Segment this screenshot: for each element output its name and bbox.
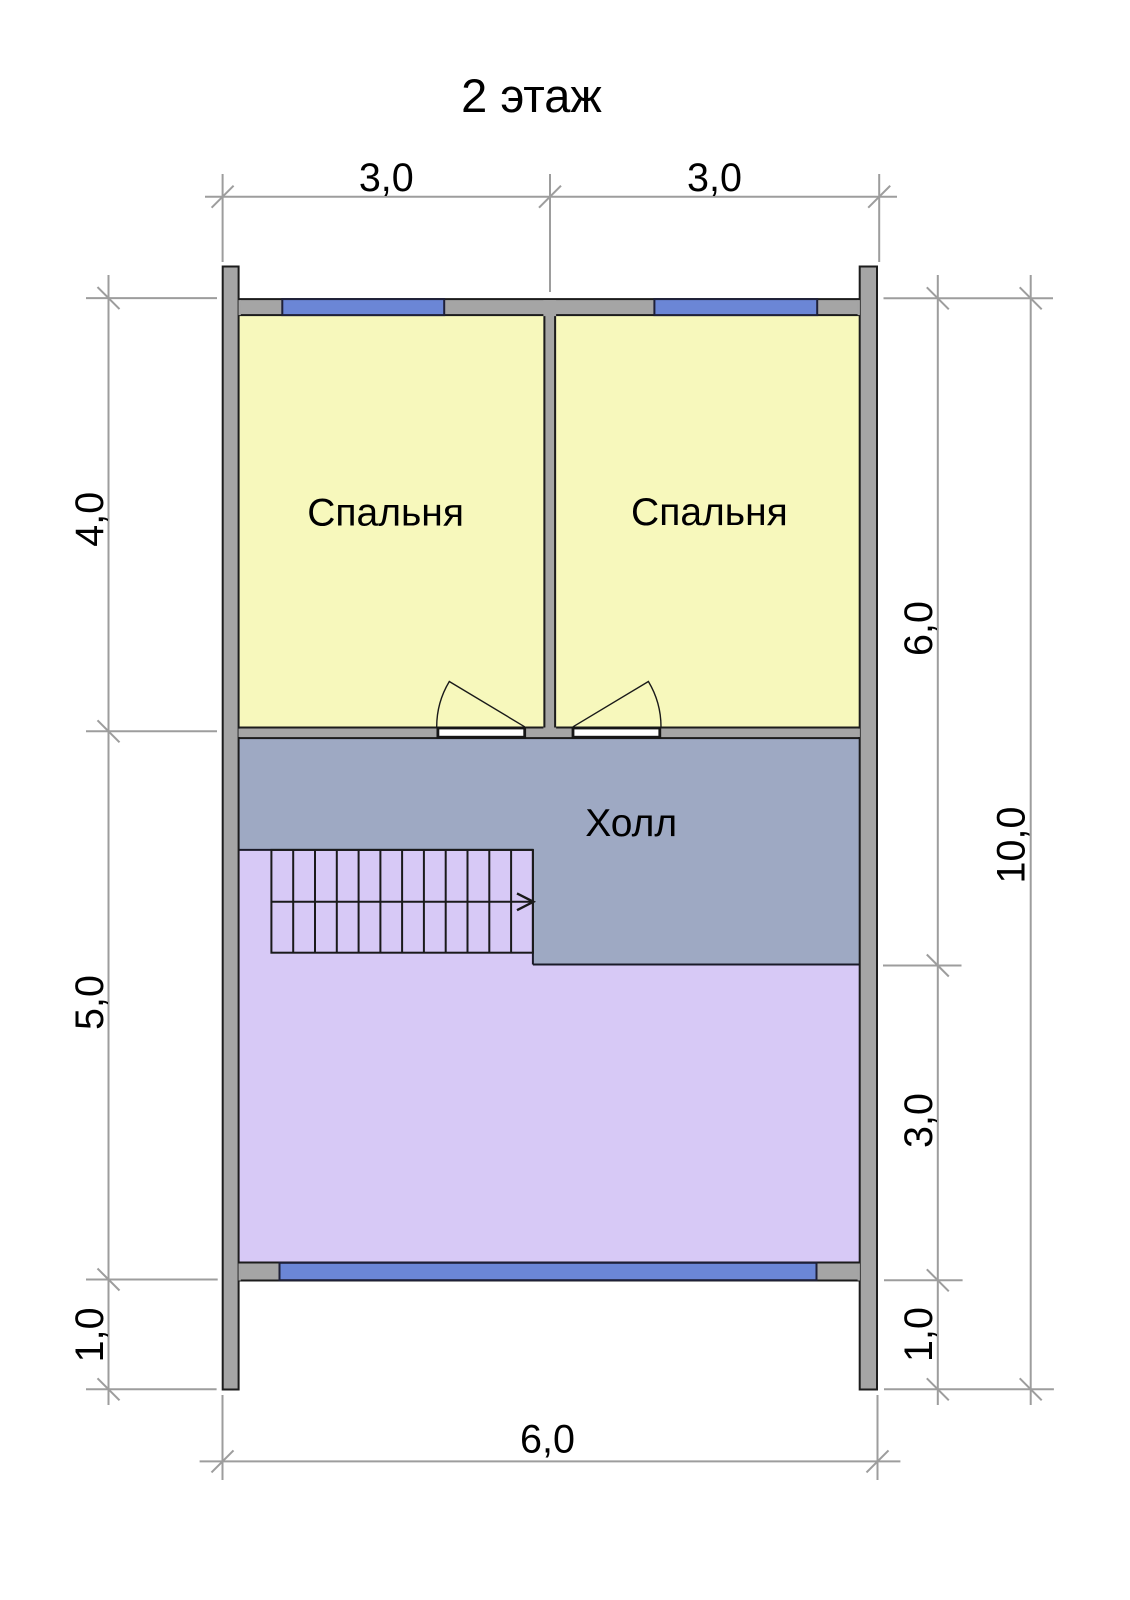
svg-text:1,0: 1,0 [897,1307,941,1362]
svg-text:2 этаж: 2 этаж [461,69,602,122]
svg-text:Холл: Холл [585,802,677,845]
svg-text:Спальня: Спальня [631,491,788,534]
svg-text:4,0: 4,0 [68,492,112,547]
svg-text:10,0: 10,0 [990,807,1034,884]
svg-text:1,0: 1,0 [68,1307,112,1362]
svg-text:3,0: 3,0 [897,1093,941,1148]
svg-text:3,0: 3,0 [687,156,742,200]
svg-text:6,0: 6,0 [520,1417,575,1461]
svg-text:6,0: 6,0 [897,601,941,656]
svg-text:3,0: 3,0 [359,156,414,200]
svg-text:5,0: 5,0 [68,975,112,1030]
svg-text:Спальня: Спальня [307,491,464,534]
